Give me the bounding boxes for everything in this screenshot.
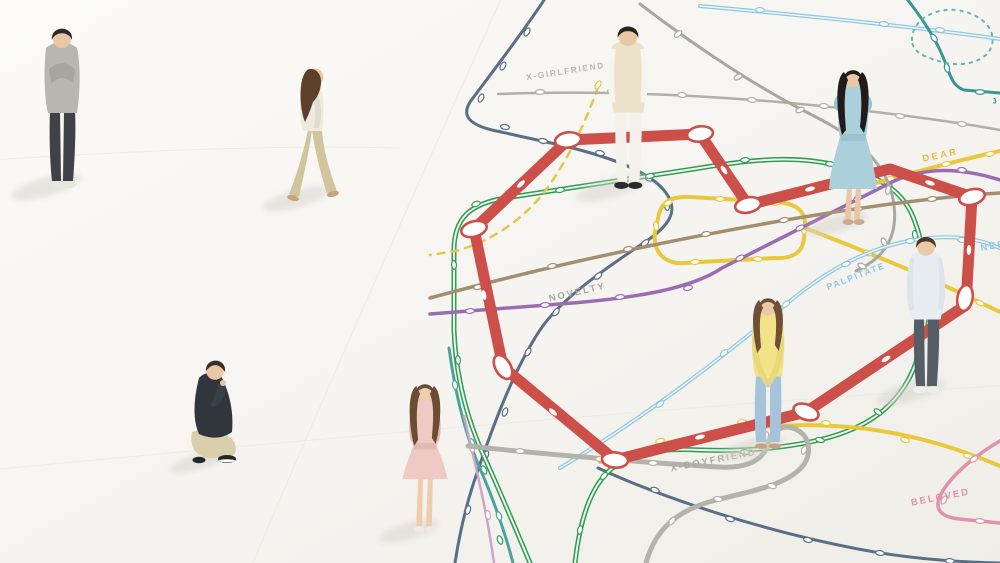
station-marker <box>715 196 724 201</box>
station-marker <box>945 558 954 563</box>
station-marker <box>927 196 936 201</box>
station-marker <box>895 113 904 119</box>
station-marker <box>905 238 914 244</box>
poster: X-GIRLFRIENDDEARNERPALPITATENOVELTYX-BOY… <box>0 0 1000 563</box>
station-marker <box>465 308 474 313</box>
station-marker <box>821 420 830 426</box>
station-marker <box>536 89 545 94</box>
poster-canvas: X-GIRLFRIENDDEARNERPALPITATENOVELTYX-BOY… <box>0 0 1000 563</box>
station-marker <box>875 550 884 556</box>
station-marker <box>975 518 984 523</box>
station-marker <box>740 157 749 163</box>
station-marker <box>455 355 461 364</box>
station-marker <box>515 448 524 453</box>
station-marker <box>649 460 658 465</box>
station-marker <box>690 259 699 264</box>
heart-station <box>601 451 628 468</box>
station-marker <box>677 92 686 97</box>
station-marker <box>755 7 764 13</box>
station-marker <box>935 27 944 33</box>
station-marker <box>957 167 966 173</box>
station-marker <box>747 97 756 103</box>
station-marker <box>615 294 624 300</box>
station-marker <box>819 103 828 109</box>
station-marker <box>879 21 888 27</box>
station-marker <box>451 260 457 269</box>
station-marker <box>753 256 762 261</box>
station-marker <box>976 89 985 94</box>
station-marker <box>540 302 549 307</box>
